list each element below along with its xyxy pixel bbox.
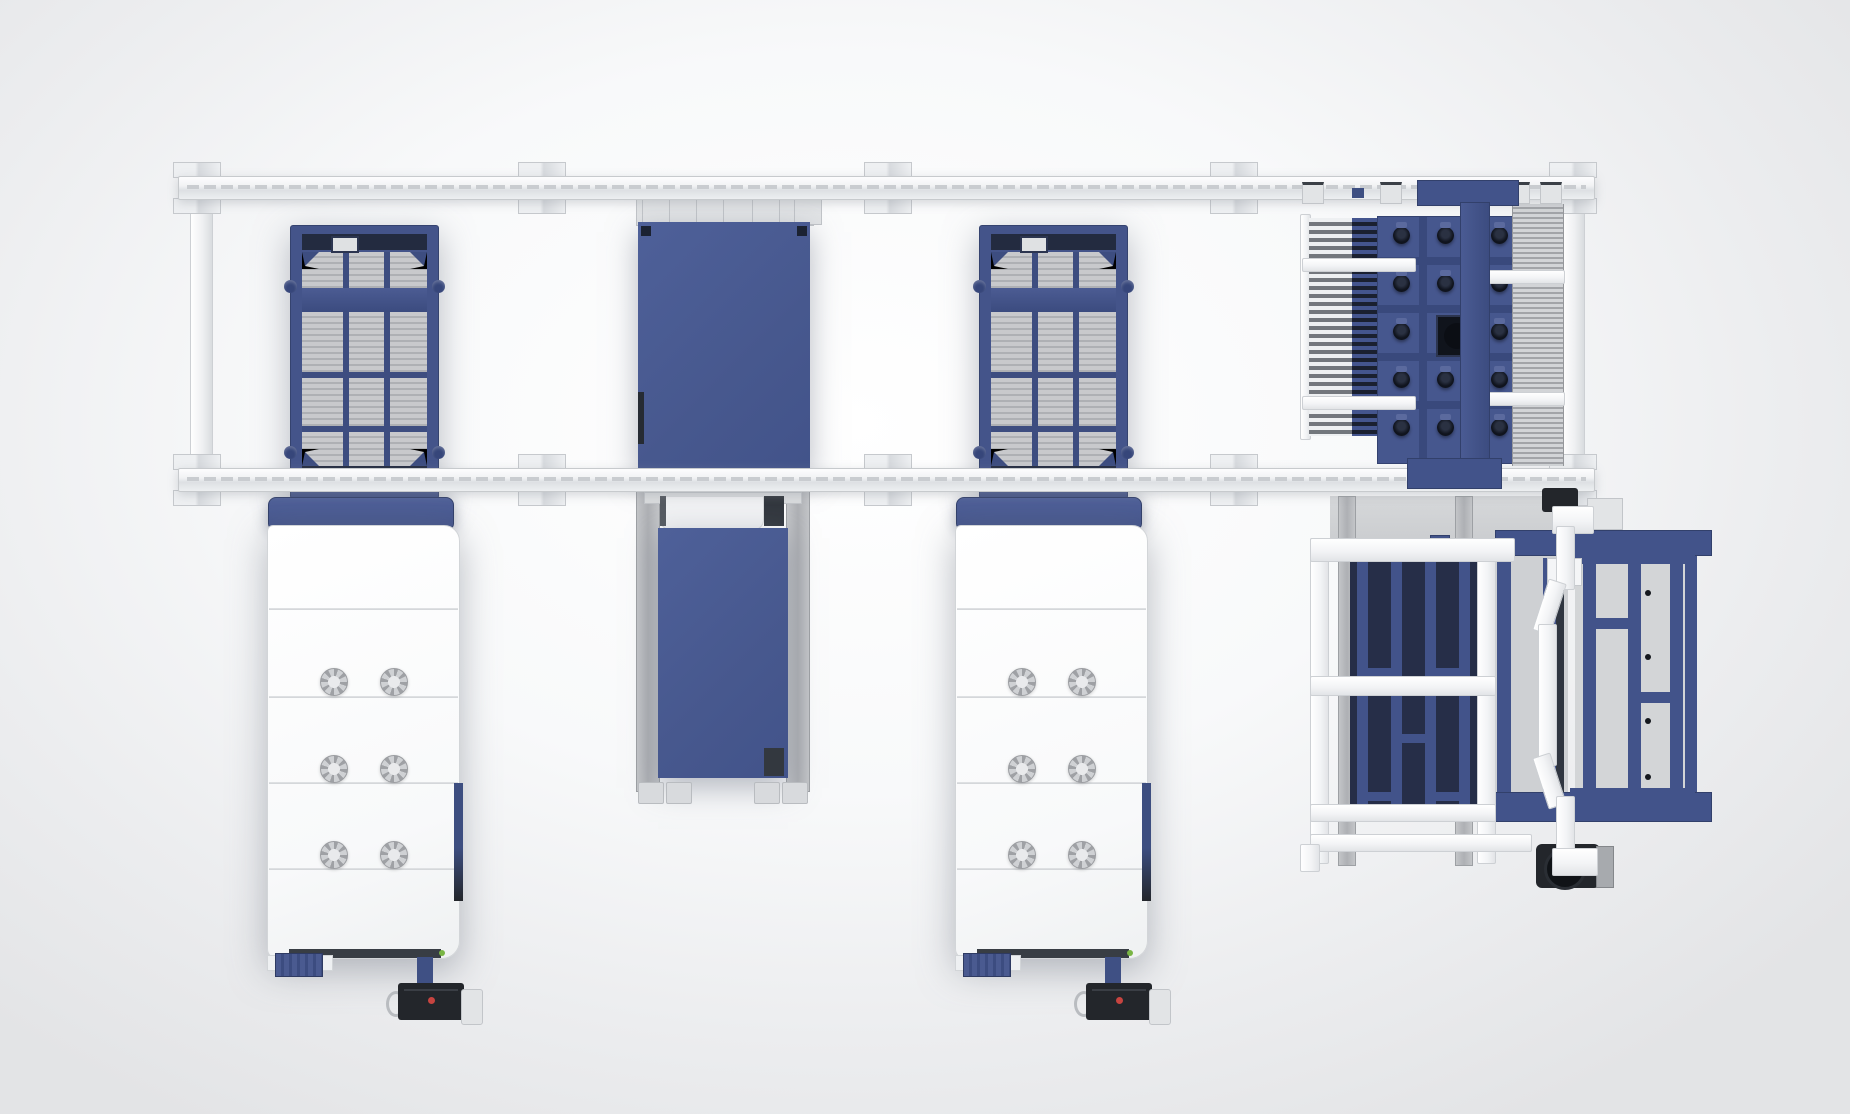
panel-seam	[269, 782, 458, 784]
tower-top-band	[991, 234, 1116, 250]
cart-bolt	[1645, 718, 1651, 724]
rake-crossbar	[1302, 396, 1416, 410]
rail-bracket	[173, 198, 221, 214]
bed-crossbar	[1485, 270, 1565, 284]
tower-side-knob	[973, 280, 986, 293]
vent-fan	[380, 755, 408, 783]
rail-bracket	[518, 198, 566, 214]
pallet-rib-stub	[1402, 734, 1425, 743]
swing-arm-segment	[1538, 624, 1557, 766]
vent-fan	[1068, 668, 1096, 696]
cart-mid-beam	[1497, 558, 1511, 792]
rail-bracket	[1210, 198, 1258, 214]
tower-divider	[302, 426, 427, 432]
pendant-red-indicator	[1116, 997, 1123, 1004]
exchange-table	[636, 490, 808, 805]
cart-bolt	[1645, 654, 1651, 660]
tower-side-knob	[973, 446, 986, 459]
tower-handle	[1020, 236, 1048, 253]
rail-bracket	[1210, 490, 1258, 506]
vent-fan	[1008, 668, 1036, 696]
table-foot	[666, 782, 692, 804]
table-dark-strip	[660, 496, 666, 526]
control-pendant	[1086, 983, 1152, 1020]
frame-beam-bottom	[1310, 834, 1532, 852]
hanger-bracket	[1302, 182, 1324, 204]
swing-arm-bottom	[1552, 848, 1598, 876]
hanger-bracket	[1380, 182, 1402, 204]
vent-fan	[380, 841, 408, 869]
suction-cup	[1393, 227, 1410, 244]
slat-grid-tower-1	[290, 225, 439, 499]
laser-machine-2	[955, 495, 1167, 1055]
pallet-rib-stub	[1368, 792, 1391, 801]
vent-fan	[1008, 841, 1036, 869]
base-blue-bar	[963, 953, 1011, 977]
corner-gusset	[991, 449, 1008, 466]
panel-seam	[957, 782, 1146, 784]
laser-machine-1	[267, 495, 479, 1055]
shuttle-sheet	[638, 222, 810, 470]
tower-vertical-divider	[384, 252, 390, 466]
plate-beam-vertical	[1419, 217, 1427, 463]
storage-unit	[1300, 496, 1710, 906]
bed-crossbar	[1485, 392, 1565, 406]
tower-cross-beam	[991, 288, 1116, 312]
corner-gusset	[1099, 449, 1116, 466]
table-foot	[782, 782, 808, 804]
pendant-bracket	[461, 989, 483, 1025]
tower-side-knob	[1121, 446, 1134, 459]
panel-seam	[269, 696, 458, 698]
machine-body	[267, 525, 460, 959]
base-blue-bar	[275, 953, 323, 977]
sheet-edge-sensor	[638, 392, 644, 444]
sheet-corner-mark	[797, 226, 807, 236]
tower-side-knob	[284, 280, 297, 293]
cart-bolt	[1645, 590, 1651, 596]
tower-vertical-divider	[1073, 252, 1079, 466]
tower-slat-panels	[991, 252, 1116, 466]
tower-divider	[991, 426, 1116, 432]
table-roller	[660, 496, 764, 530]
tower-side-knob	[1121, 280, 1134, 293]
vent-fan	[320, 755, 348, 783]
table-foot	[754, 782, 780, 804]
tower-side-knob	[432, 280, 445, 293]
cart-stub	[1596, 618, 1628, 629]
vent-fan	[1068, 841, 1096, 869]
vent-fan	[320, 841, 348, 869]
corner-gusset	[410, 449, 427, 466]
tower-divider	[302, 372, 427, 378]
gantry-end-post-right	[1562, 186, 1585, 488]
frame-beam-top	[1310, 538, 1515, 562]
suction-plate	[1377, 216, 1514, 464]
suction-cup	[1491, 227, 1508, 244]
panel-seam	[269, 868, 458, 870]
slat-grid-tower-2	[979, 225, 1128, 499]
gantry-rail-bottom	[178, 468, 1595, 492]
corner-gusset	[1099, 252, 1116, 269]
tower-divider	[991, 372, 1116, 378]
vent-fan	[320, 668, 348, 696]
pallet-rib-stub	[1436, 792, 1459, 801]
frame-beam-lower	[1310, 804, 1496, 822]
suction-cup	[1393, 371, 1410, 388]
swing-arm-segment	[1556, 526, 1575, 590]
table-side-rail-right	[786, 490, 810, 792]
table-foot	[638, 782, 664, 804]
cart-bolt	[1645, 774, 1651, 780]
suction-cup	[1437, 371, 1454, 388]
tower-handle	[331, 236, 359, 253]
tower-side-knob	[284, 446, 297, 459]
motor-plate	[1596, 846, 1614, 888]
suction-cup	[1393, 419, 1410, 436]
laser-cutting-line-top-view	[0, 0, 1850, 1114]
unloader-slat-bed	[1512, 204, 1564, 466]
table-sheet	[658, 528, 788, 778]
machine-body	[955, 525, 1148, 959]
tower-side-knob	[432, 446, 445, 459]
t-beam-bottom-crossbar	[1407, 458, 1502, 489]
cart-frame-top	[1570, 548, 1695, 564]
panel-seam	[957, 696, 1146, 698]
frame-beam-middle	[1310, 676, 1496, 696]
unloading-unit	[1300, 196, 1593, 496]
status-led-green	[439, 950, 445, 956]
tower-vertical-divider	[1032, 252, 1038, 466]
tower-vertical-divider	[343, 252, 349, 466]
tower-top-band	[302, 234, 427, 250]
side-attachment	[1142, 783, 1151, 901]
panel-seam	[269, 608, 458, 610]
t-beam-stem	[1460, 202, 1490, 466]
panel-seam	[957, 868, 1146, 870]
rail-bracket	[864, 490, 912, 506]
cart-stub	[1641, 692, 1670, 703]
corner-gusset	[302, 252, 319, 269]
rake-crossbar	[1302, 258, 1416, 272]
suction-cup	[1393, 323, 1410, 340]
rail-bracket	[173, 490, 221, 506]
rail-bracket	[518, 490, 566, 506]
pendant-detail	[404, 989, 458, 991]
suction-cup	[1491, 371, 1508, 388]
panel-seam	[957, 608, 1146, 610]
hanger-flag	[1352, 188, 1364, 198]
cart-beam	[1628, 552, 1641, 800]
corner-gusset	[991, 252, 1008, 269]
pendant-bracket	[1149, 989, 1171, 1025]
frame-foot	[1300, 844, 1320, 872]
table-side-rail-left	[636, 490, 660, 792]
vent-fan	[1068, 755, 1096, 783]
cart-beam	[1670, 552, 1683, 800]
gantry-end-post-left	[190, 186, 213, 488]
vent-fan	[380, 668, 408, 696]
suction-cup	[1491, 419, 1508, 436]
corner-gusset	[410, 252, 427, 269]
control-pendant	[398, 983, 464, 1020]
rail-bracket	[864, 198, 912, 214]
status-led-green	[1127, 950, 1133, 956]
table-dark-block	[764, 748, 784, 776]
tower-cross-beam	[302, 288, 427, 312]
suction-cup	[1437, 275, 1454, 292]
suction-cup	[1437, 227, 1454, 244]
pendant-detail	[1092, 989, 1146, 991]
cart-edge-beam	[1685, 540, 1697, 808]
suction-cup	[1393, 275, 1410, 292]
side-attachment	[454, 783, 463, 901]
sheet-corner-mark	[641, 226, 651, 236]
suction-cup	[1437, 419, 1454, 436]
cart-beam	[1583, 552, 1596, 800]
hanger-bracket	[1540, 182, 1562, 204]
table-dark-block	[764, 496, 784, 526]
vent-fan	[1008, 755, 1036, 783]
plate-beam-horizontal	[1378, 305, 1513, 313]
tower-slat-panels	[302, 252, 427, 466]
suction-cup	[1491, 323, 1508, 340]
corner-gusset	[302, 449, 319, 466]
cart-frame-bottom	[1570, 788, 1695, 804]
pendant-red-indicator	[428, 997, 435, 1004]
